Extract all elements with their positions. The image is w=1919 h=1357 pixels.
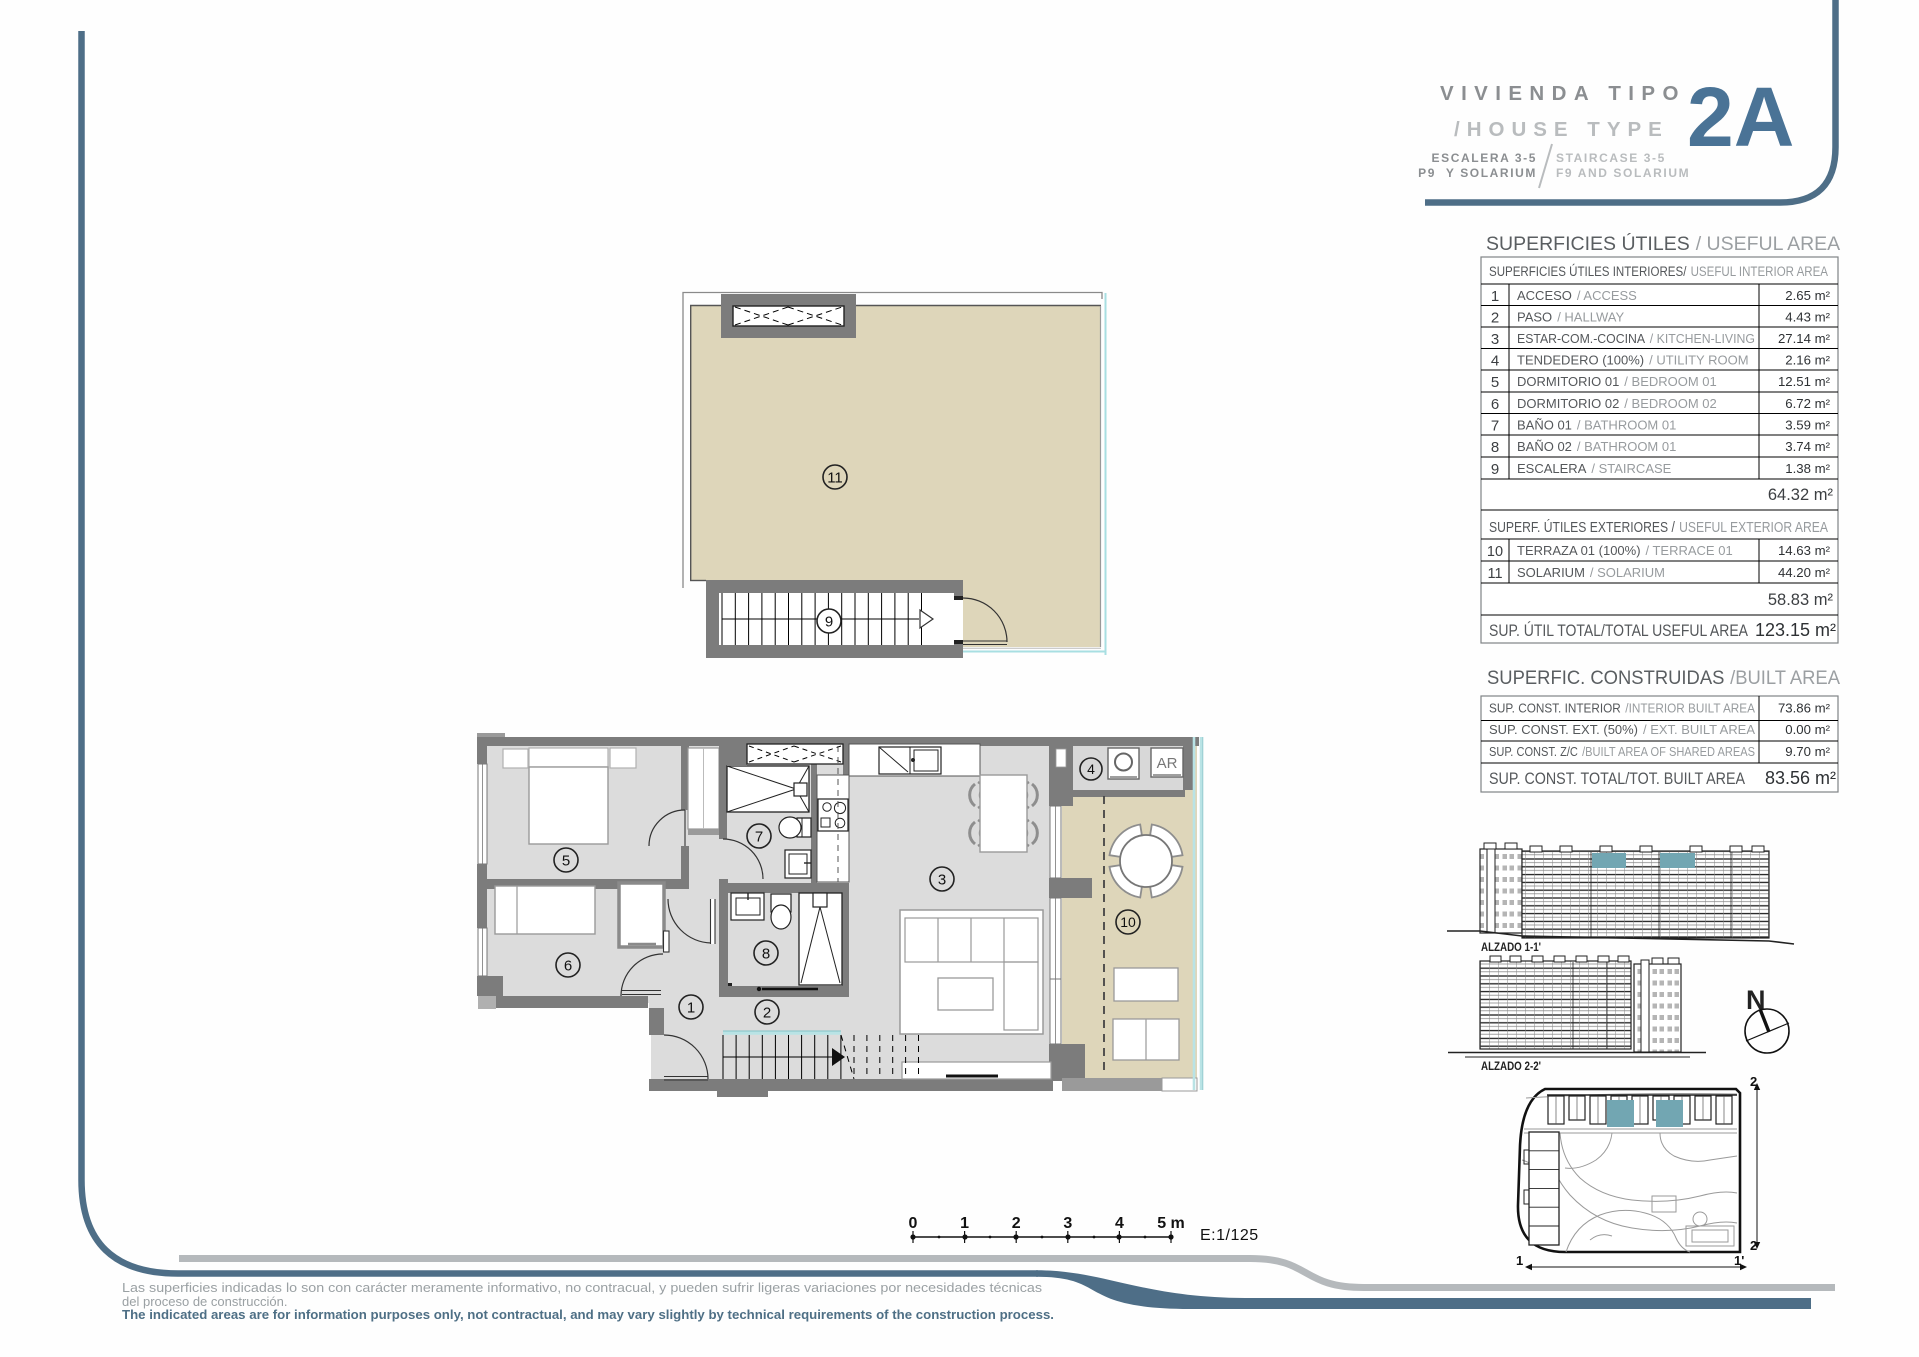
svg-text:/ BATHROOM 01: / BATHROOM 01	[1577, 417, 1676, 432]
svg-text:11: 11	[827, 469, 843, 486]
svg-text:1: 1	[960, 1215, 969, 1232]
svg-text:11: 11	[1487, 566, 1502, 582]
svg-text:SUP. CONST. EXT. (50%): SUP. CONST. EXT. (50%)	[1489, 722, 1638, 737]
svg-text:SOLARIUM: SOLARIUM	[1517, 565, 1585, 580]
svg-text:VIVIENDA TIPO: VIVIENDA TIPO	[1440, 82, 1686, 105]
svg-text:4: 4	[1087, 761, 1095, 777]
svg-text:SUPERFICIES ÚTILES: SUPERFICIES ÚTILES	[1486, 232, 1690, 255]
svg-text:2.65 m²: 2.65 m²	[1785, 288, 1830, 303]
svg-text:/ BATHROOM 01: / BATHROOM 01	[1577, 439, 1676, 454]
svg-text:/ TERRACE 01: / TERRACE 01	[1646, 543, 1733, 558]
svg-text:TENDEDERO (100%): TENDEDERO (100%)	[1517, 352, 1644, 367]
svg-text:0: 0	[909, 1215, 918, 1232]
svg-text:DORMITORIO 01: DORMITORIO 01	[1517, 374, 1619, 389]
svg-text:123.15 m²: 123.15 m²	[1755, 620, 1836, 640]
svg-text:SUPERF. ÚTILES EXTERIORES /: SUPERF. ÚTILES EXTERIORES /	[1489, 519, 1676, 536]
svg-text:27.14 m²: 27.14 m²	[1778, 331, 1831, 346]
svg-text:44.20 m²: 44.20 m²	[1778, 565, 1831, 580]
svg-text:8: 8	[1491, 439, 1499, 456]
svg-text:58.83 m²: 58.83 m²	[1768, 591, 1834, 609]
svg-text:2A: 2A	[1687, 70, 1794, 164]
svg-text:SUPERFIC. CONSTRUIDAS: SUPERFIC. CONSTRUIDAS	[1487, 667, 1724, 689]
svg-text:5: 5	[562, 852, 570, 869]
svg-text:4.43 m²: 4.43 m²	[1785, 309, 1830, 324]
svg-text:BAÑO 01: BAÑO 01	[1517, 417, 1572, 432]
svg-text:BAÑO 02: BAÑO 02	[1517, 439, 1572, 454]
svg-text:6.72 m²: 6.72 m²	[1785, 396, 1830, 411]
svg-text:USEFUL EXTERIOR AREA: USEFUL EXTERIOR AREA	[1679, 520, 1828, 536]
svg-text:ALZADO 2-2': ALZADO 2-2'	[1481, 1061, 1541, 1073]
svg-text:SUP. CONST. TOTAL/TOT. BUILT A: SUP. CONST. TOTAL/TOT. BUILT AREA	[1489, 769, 1746, 788]
svg-text:7: 7	[755, 828, 763, 845]
svg-text:3.74 m²: 3.74 m²	[1785, 439, 1830, 454]
svg-text:/ BEDROOM 02: / BEDROOM 02	[1624, 396, 1716, 411]
svg-text:4: 4	[1115, 1215, 1124, 1232]
svg-text:10: 10	[1487, 544, 1503, 560]
svg-text:0.00 m²: 0.00 m²	[1785, 722, 1830, 737]
svg-text:2: 2	[1012, 1215, 1021, 1232]
svg-text:1: 1	[1491, 288, 1499, 305]
svg-text:ACCESO: ACCESO	[1517, 288, 1572, 303]
svg-text:AR: AR	[1157, 755, 1178, 772]
svg-text:STAIRCASE 3-5: STAIRCASE 3-5	[1556, 151, 1666, 165]
svg-text:SUPERFICIES ÚTILES INTERIORES/: SUPERFICIES ÚTILES INTERIORES/	[1489, 264, 1687, 279]
svg-text:/INTERIOR BUILT AREA: /INTERIOR BUILT AREA	[1625, 701, 1755, 716]
svg-text:/ ACCESS: / ACCESS	[1577, 288, 1637, 303]
svg-text:/ HALLWAY: / HALLWAY	[1557, 309, 1624, 324]
svg-text:/ KITCHEN-LIVING: / KITCHEN-LIVING	[1650, 331, 1755, 346]
svg-text:USEFUL INTERIOR AREA: USEFUL INTERIOR AREA	[1691, 264, 1828, 279]
svg-text:/ USEFUL AREA: / USEFUL AREA	[1696, 233, 1841, 255]
svg-text:/ UTILITY ROOM: / UTILITY ROOM	[1649, 352, 1748, 367]
svg-text:F9 AND SOLARIUM: F9 AND SOLARIUM	[1556, 166, 1690, 180]
svg-text:P9 Y SOLARIUM: P9 Y SOLARIUM	[1418, 166, 1537, 180]
svg-text:10: 10	[1120, 914, 1136, 930]
svg-text:/BUILT AREA: /BUILT AREA	[1730, 667, 1840, 689]
svg-text:SUP. CONST. INTERIOR: SUP. CONST. INTERIOR	[1489, 701, 1621, 716]
svg-text:/HOUSE TYPE: /HOUSE TYPE	[1454, 118, 1669, 141]
svg-text:/BUILT AREA OF SHARED AREAS: /BUILT AREA OF SHARED AREAS	[1582, 744, 1755, 759]
svg-text:5: 5	[1491, 374, 1499, 391]
svg-text:3.59 m²: 3.59 m²	[1785, 417, 1830, 432]
svg-text:ESTAR-COM.-COCINA: ESTAR-COM.-COCINA	[1517, 331, 1645, 346]
svg-text:/ STAIRCASE: / STAIRCASE	[1591, 461, 1671, 476]
svg-text:/ SOLARIUM: / SOLARIUM	[1590, 565, 1665, 580]
svg-text:/ BEDROOM 01: / BEDROOM 01	[1624, 374, 1716, 389]
svg-text:ESCALERA: ESCALERA	[1517, 461, 1587, 476]
svg-text:9.70 m²: 9.70 m²	[1785, 744, 1830, 759]
svg-text:6: 6	[1491, 396, 1499, 413]
svg-text:1.38 m²: 1.38 m²	[1785, 461, 1830, 476]
svg-text:6: 6	[564, 957, 572, 974]
svg-text:83.56 m²: 83.56 m²	[1765, 768, 1836, 788]
svg-text:12.51 m²: 12.51 m²	[1778, 374, 1831, 389]
svg-text:N: N	[1746, 985, 1766, 1015]
svg-text:1: 1	[1516, 1253, 1523, 1268]
svg-text:SUP. CONST. Z/C: SUP. CONST. Z/C	[1489, 744, 1578, 759]
svg-text:2: 2	[1491, 309, 1499, 326]
svg-text:3: 3	[1063, 1215, 1072, 1232]
svg-text:ALZADO 1-1': ALZADO 1-1'	[1481, 942, 1541, 954]
svg-text:PASO: PASO	[1517, 309, 1552, 324]
svg-text:3: 3	[938, 871, 946, 888]
svg-text:9: 9	[1491, 461, 1499, 478]
svg-text:64.32 m²: 64.32 m²	[1768, 486, 1834, 504]
svg-text:9: 9	[825, 613, 833, 630]
svg-text:2.16 m²: 2.16 m²	[1785, 352, 1830, 367]
svg-text:5 m: 5 m	[1157, 1215, 1185, 1232]
svg-text:/ EXT. BUILT AREA: / EXT. BUILT AREA	[1643, 722, 1755, 737]
svg-text:14.63 m²: 14.63 m²	[1778, 543, 1831, 558]
svg-text:Las superficies indicadas lo s: Las superficies indicadas lo son con car…	[122, 1280, 1043, 1295]
svg-text:1: 1	[687, 999, 695, 1016]
svg-text:8: 8	[762, 945, 770, 962]
svg-text:SUP. ÚTIL TOTAL/TOTAL USEFUL A: SUP. ÚTIL TOTAL/TOTAL USEFUL AREA	[1489, 621, 1749, 640]
svg-text:4: 4	[1491, 352, 1499, 369]
svg-text:ESCALERA 3-5: ESCALERA 3-5	[1432, 151, 1537, 165]
svg-text:2: 2	[763, 1004, 771, 1021]
svg-text:E:1/125: E:1/125	[1200, 1227, 1259, 1244]
svg-text:TERRAZA 01 (100%): TERRAZA 01 (100%)	[1517, 543, 1641, 558]
svg-text:73.86 m²: 73.86 m²	[1778, 701, 1831, 716]
svg-text:3: 3	[1491, 331, 1499, 348]
svg-text:7: 7	[1491, 417, 1499, 434]
svg-text:DORMITORIO 02: DORMITORIO 02	[1517, 396, 1619, 411]
svg-text:The indicated areas are for in: The indicated areas are for information …	[122, 1307, 1054, 1322]
